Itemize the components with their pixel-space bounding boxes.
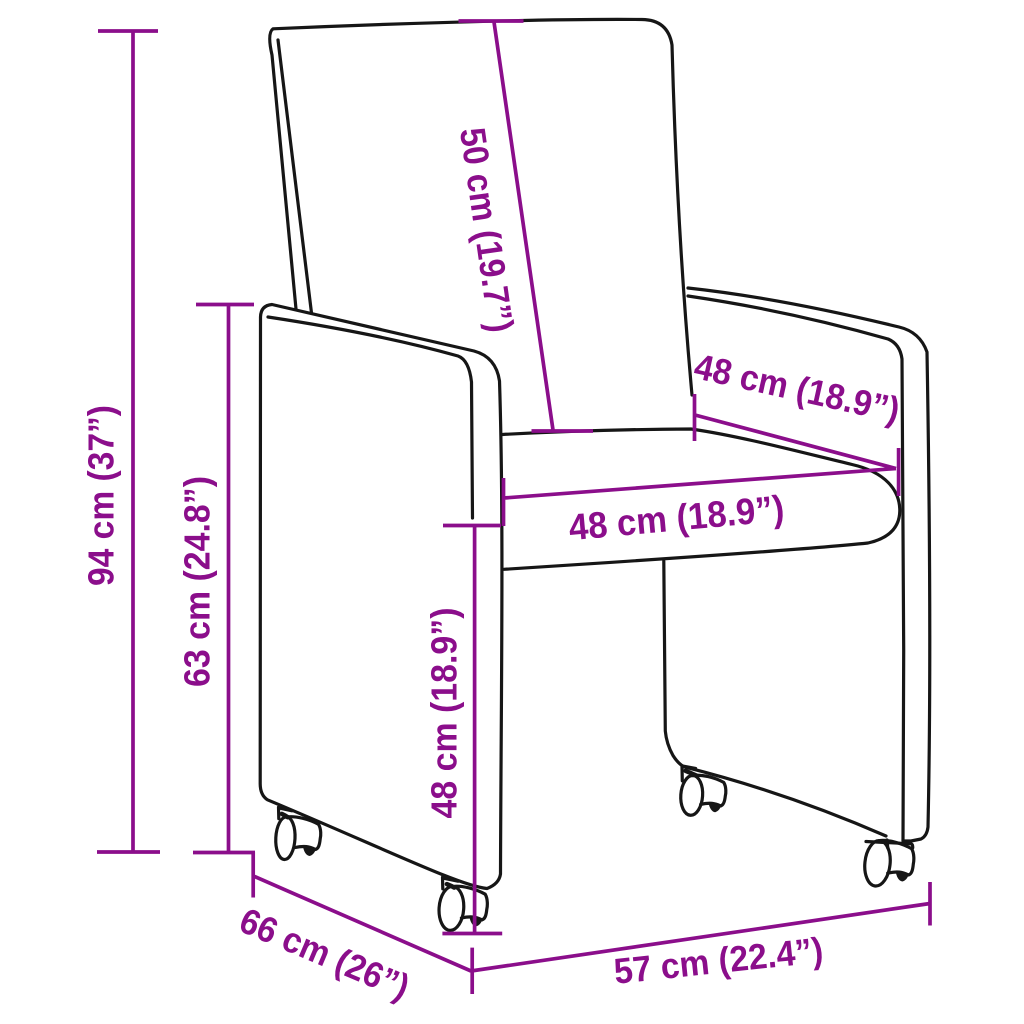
svg-text:48 cm (18.9”): 48 cm (18.9”)	[424, 608, 465, 819]
svg-text:63 cm (24.8”): 63 cm (24.8”)	[177, 476, 218, 687]
svg-text:94 cm (37”): 94 cm (37”)	[81, 405, 122, 586]
